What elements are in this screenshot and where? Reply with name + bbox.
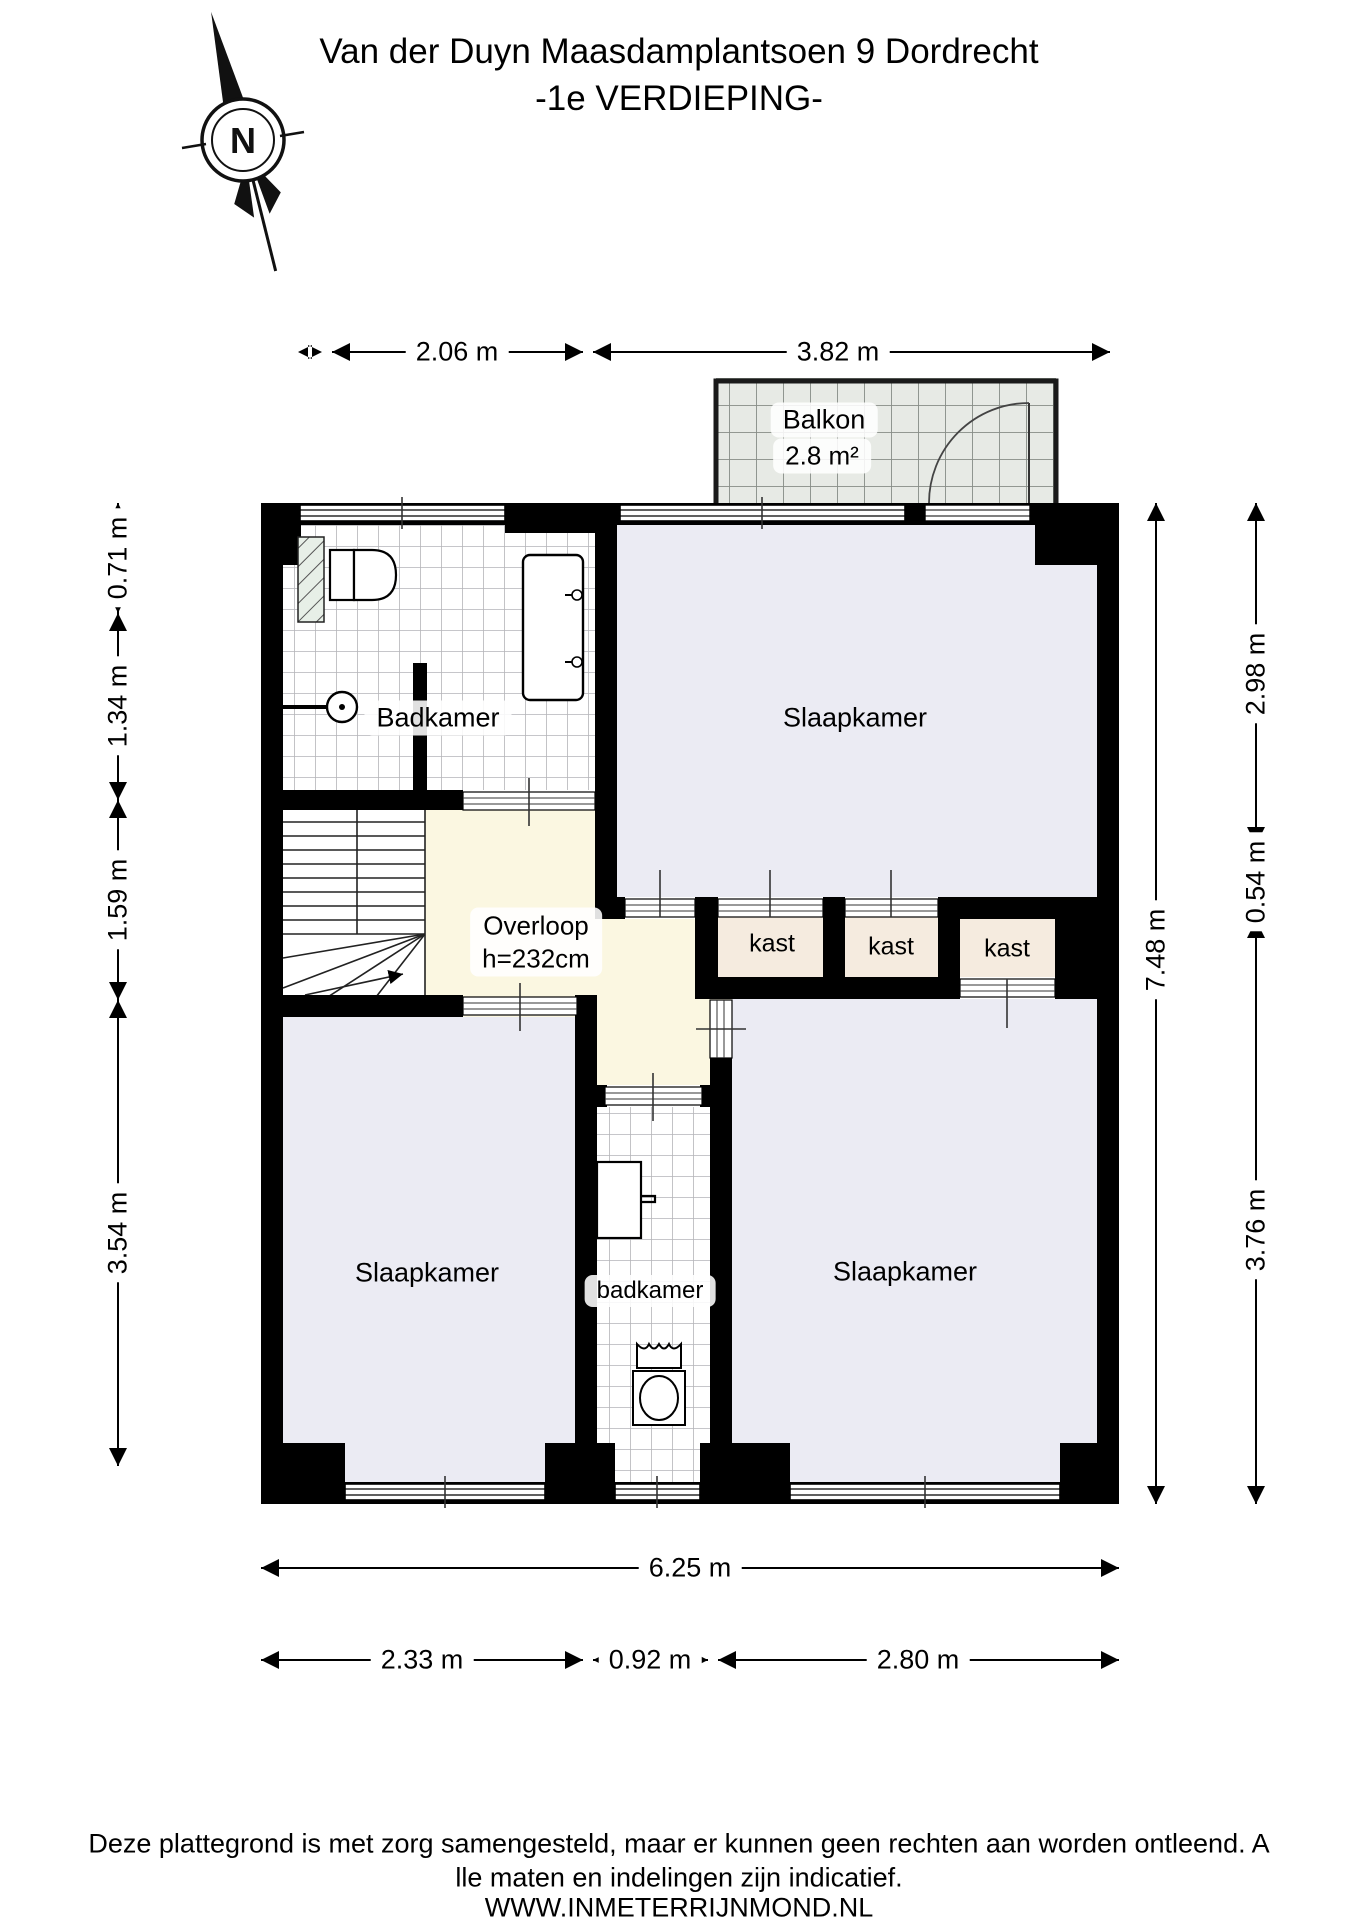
room-label-badkamer-bottom: badkamer	[585, 1275, 716, 1307]
dim-top-right: 3.82 m	[787, 337, 890, 368]
duct-hatch	[298, 537, 324, 622]
room-area-balkon: 2.8 m²	[773, 439, 871, 474]
room-label-slaapkamer-top: Slaapkamer	[783, 703, 927, 734]
floorplan-page: N Van der Duyn Maasdamplantsoen 9 Dordre…	[0, 0, 1358, 1920]
toilet-icon	[330, 550, 396, 600]
dim-bottom-1: 2.33 m	[371, 1645, 474, 1676]
bedroom-right-floor	[732, 999, 1097, 1482]
room-label-badkamer-top: Badkamer	[364, 701, 511, 736]
dim-right-3: 3.76 m	[1241, 1181, 1272, 1280]
wall-bath-bedroom	[595, 525, 617, 919]
disclaimer-line-2: lle maten en indelingen zijn indicatief.	[455, 1863, 902, 1894]
disclaimer-line-1: Deze plattegrond is met zorg samengestel…	[88, 1829, 1269, 1860]
page-title: Van der Duyn Maasdamplantsoen 9 Dordrech…	[319, 32, 1038, 72]
dim-left-3: 1.59 m	[103, 851, 134, 950]
room-label-slaapkamer-right: Slaapkamer	[833, 1257, 977, 1288]
room-label-kast1: kast	[749, 930, 795, 959]
washing-machine-icon	[633, 1344, 685, 1425]
balcony-door-threshold	[925, 505, 1030, 521]
overloop-name: Overloop	[482, 910, 590, 943]
mini-dim-arrows	[298, 345, 322, 359]
balcony	[716, 378, 1056, 503]
dim-left-2: 1.34 m	[103, 657, 134, 756]
floor-subtitle: -1e VERDIEPING-	[535, 79, 823, 119]
dim-right-total: 7.48 m	[1141, 901, 1172, 1000]
room-label-kast2: kast	[868, 933, 914, 962]
dim-right-2: 0.54 m	[1241, 833, 1272, 932]
room-label-balkon: Balkon	[771, 403, 878, 438]
compass-icon: N	[182, 6, 304, 277]
dim-right-1: 2.98 m	[1241, 625, 1272, 724]
compass-north-label: N	[230, 120, 256, 161]
dim-left-1: 0.71 m	[103, 509, 134, 608]
dim-left-4: 3.54 m	[103, 1184, 134, 1283]
watermark-url: WWW.INMETERRIJNMOND.NL	[485, 1893, 873, 1920]
bathtub-icon	[523, 555, 583, 700]
dim-bottom-total: 6.25 m	[639, 1553, 742, 1584]
room-label-overloop: Overloop h=232cm	[470, 908, 602, 977]
washtub-symbol	[637, 1344, 681, 1368]
bedroom-left-floor	[283, 1017, 575, 1482]
staircase	[283, 810, 425, 1015]
room-label-slaapkamer-left: Slaapkamer	[355, 1258, 499, 1289]
room-label-kast3: kast	[984, 935, 1030, 964]
dim-bottom-2: 0.92 m	[599, 1645, 702, 1676]
dim-top-left: 2.06 m	[406, 337, 509, 368]
overloop-height: h=232cm	[482, 942, 590, 975]
dim-bottom-3: 2.80 m	[867, 1645, 970, 1676]
